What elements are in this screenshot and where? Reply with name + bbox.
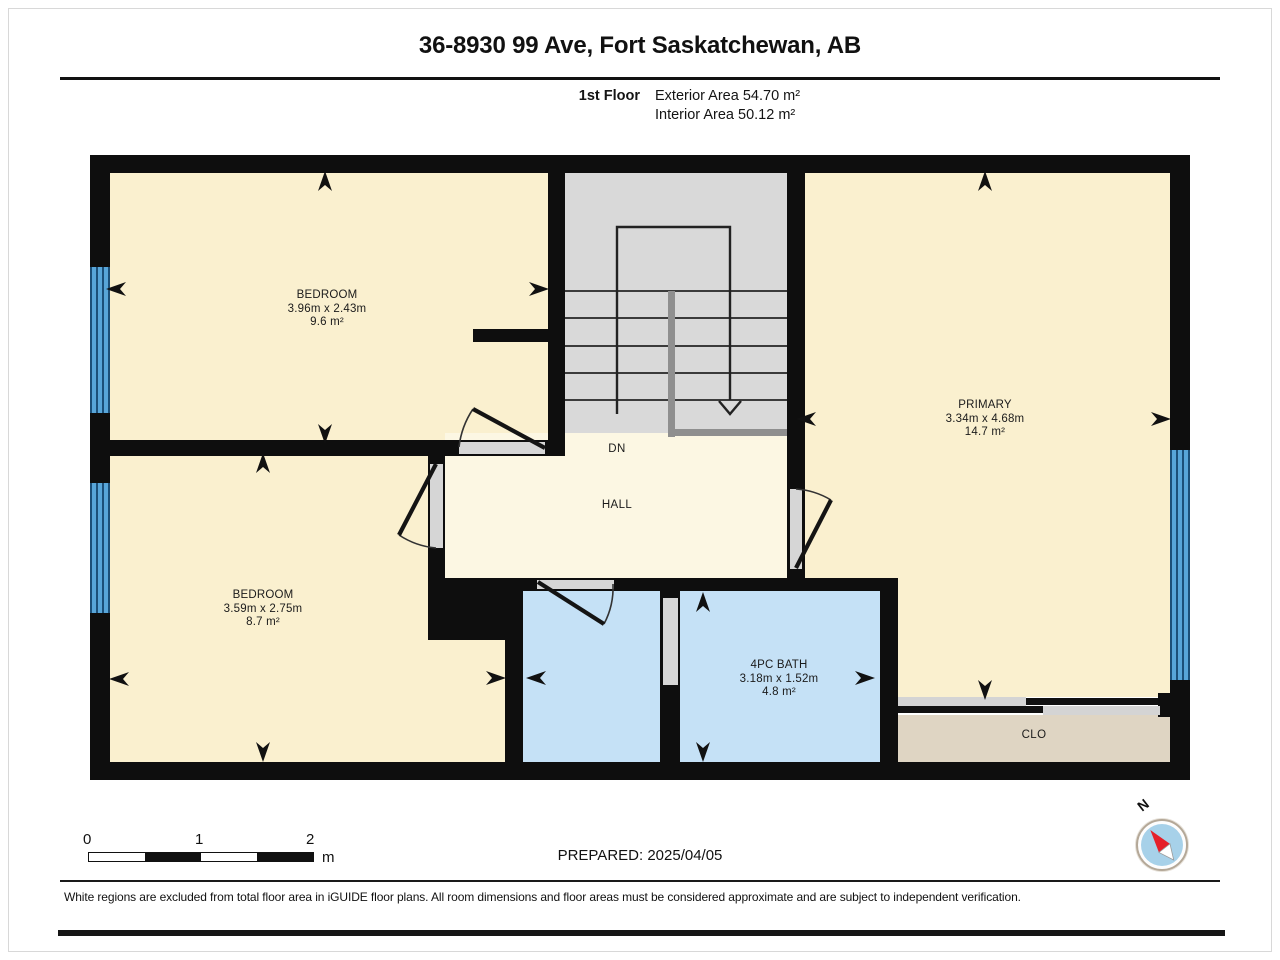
room-label-bath: 4PC BATH 3.18m x 1.52m 4.8 m² [679,659,879,700]
scale-tick-1: 1 [195,831,203,848]
room-area: 4.8 m² [679,686,879,700]
room-label-primary: PRIMARY 3.34m x 4.68m 14.7 m² [885,399,1085,440]
wall-closet-stub [1158,693,1172,717]
wall-corner-block [428,578,523,640]
room-area: 14.7 m² [885,426,1085,440]
wall-exterior-top [90,155,1190,173]
wall-bath-primary [880,578,898,762]
room-name: PRIMARY [885,399,1085,413]
room-area: 9.6 m² [227,316,427,330]
room-dims: 3.34m x 4.68m [885,413,1085,427]
wall-bedroom2-utility [505,640,523,762]
bypass-door-track-right [1043,706,1160,715]
page-bottom-bar [58,930,1225,936]
bypass-door-track-left [898,697,1026,706]
door-opening-bedroom2 [430,464,443,548]
door-opening-primary [790,489,802,569]
wall-bedroom1-stairs [548,173,565,456]
room-name: BEDROOM [163,589,363,603]
closet-label: CLO [984,729,1084,741]
room-area: 8.7 m² [163,616,363,630]
door-opening-bath [663,598,678,685]
footer-divider [60,880,1220,882]
room-name: BEDROOM [227,289,427,303]
room-dims: 3.18m x 1.52m [679,673,879,687]
room-label-bedroom-2: BEDROOM 3.59m x 2.75m 8.7 m² [163,589,363,630]
compass-disc [1141,824,1183,866]
room-dims: 3.59m x 2.75m [163,603,363,617]
wall-exterior-left [90,155,110,780]
wall-exterior-bottom [90,762,1190,780]
bypass-door-panel-right [1026,698,1158,705]
room-name: 4PC BATH [679,659,879,673]
room-utility [523,591,660,762]
room-bedroom-2-extension [428,640,505,762]
window-bedroom1 [90,267,110,413]
plan-title: 36-8930 99 Ave, Fort Saskatchewan, AB [0,32,1280,60]
window-primary [1170,450,1190,680]
footer-disclaimer: White regions are excluded from total fl… [64,890,1224,904]
wall-bedroom1-stub [473,329,565,342]
scale-tick-2: 2 [306,831,314,848]
interior-area: Interior Area 50.12 m² [655,107,795,123]
bypass-door-panel-left [898,706,1043,713]
door-opening-bedroom1 [459,442,545,454]
prepared-date: PREPARED: 2025/04/05 [0,847,1280,864]
scale-tick-0: 0 [83,831,91,848]
room-dims: 3.96m x 2.43m [227,303,427,317]
compass-north-label: N [1134,796,1152,815]
stairs-dn-label: DN [592,443,642,455]
room-stairs [565,173,787,433]
floor-label: 1st Floor [450,88,640,104]
hall-label: HALL [567,499,667,511]
window-bedroom2 [90,483,110,613]
door-opening-utility [537,580,614,589]
room-label-bedroom-1: BEDROOM 3.96m x 2.43m 9.6 m² [227,289,427,330]
title-divider [60,77,1220,80]
floorplan-page: { "header": { "title": "36-8930 99 Ave, … [0,0,1280,960]
exterior-area: Exterior Area 54.70 m² [655,88,800,104]
